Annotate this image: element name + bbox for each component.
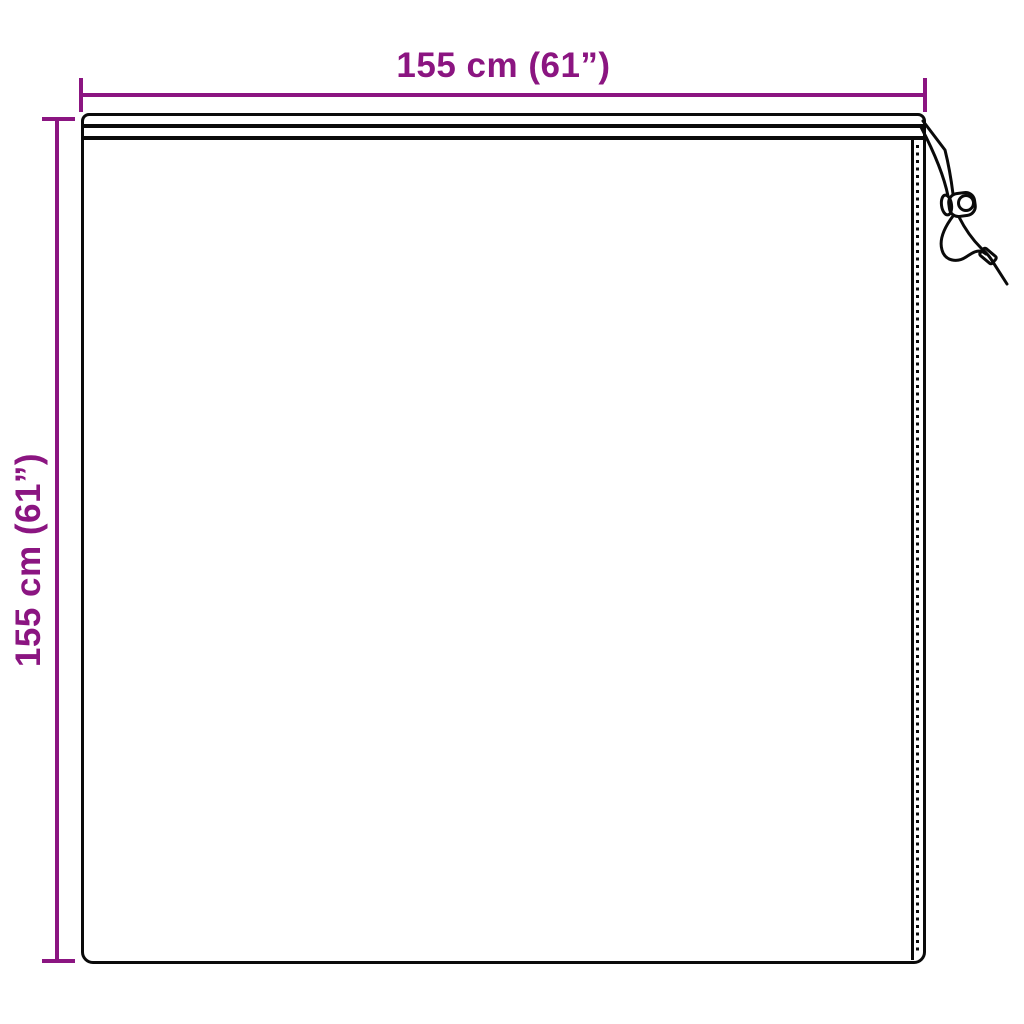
- height-dimension-tick-end: [42, 959, 75, 963]
- height-dimension-label: 155 cm (61”): [9, 453, 49, 667]
- height-dimension-tick-start: [42, 117, 75, 121]
- width-dimension-label: 155 cm (61”): [81, 46, 926, 86]
- hem-channel-line-upper: [83, 124, 924, 128]
- width-dimension-tick-end: [923, 78, 927, 112]
- height-dimension-line: [55, 119, 59, 962]
- cord-upper-right-strand: [923, 121, 953, 194]
- drawstring-cord-lock-icon: [912, 110, 1022, 292]
- cover-outline: [81, 113, 926, 964]
- product-dimension-diagram: 155 cm (61”) 155 cm (61”): [0, 0, 1024, 1024]
- hem-channel-line-lower: [83, 136, 924, 140]
- toggle-hole: [959, 196, 974, 211]
- width-dimension-line: [81, 93, 926, 97]
- width-dimension-tick-start: [79, 78, 83, 112]
